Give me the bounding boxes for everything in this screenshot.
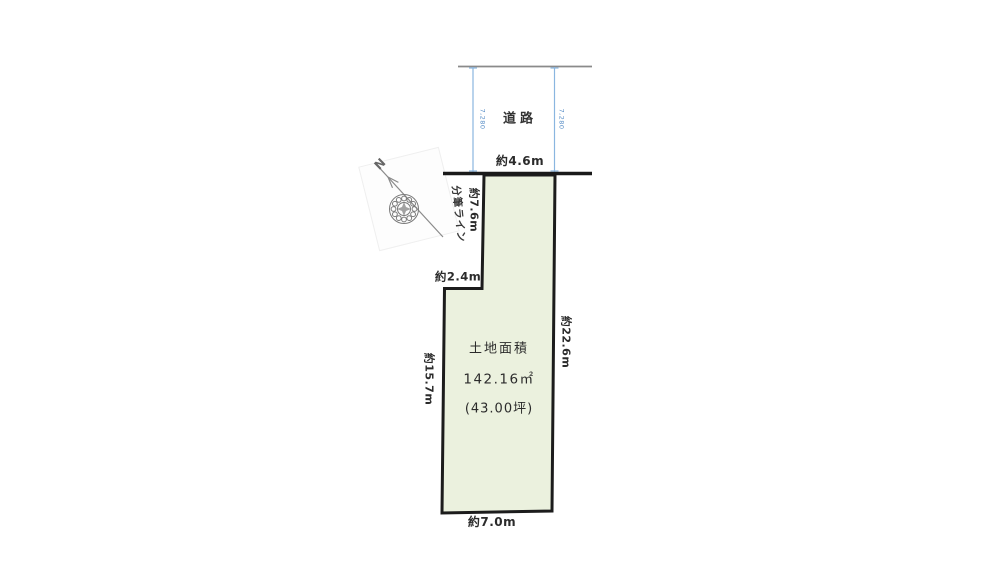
land-area-title: 土地面積	[463, 338, 534, 357]
land-plot-diagram: N 道路 7,280 7,280 約4.6m 約7.6m 分筆ライン 約2.4m…	[0, 0, 1000, 563]
road-width-dim-right: 7,280	[558, 108, 565, 129]
road-width-dim-left: 7,280	[479, 108, 486, 129]
land-area-tsubo: (43.00坪)	[463, 398, 534, 417]
step-edge-dimension: 約2.4m	[435, 271, 481, 283]
bottom-edge-dimension: 約7.0m	[468, 516, 516, 528]
diagram-shapes: N	[0, 0, 1000, 563]
road-label: 道路	[503, 113, 537, 126]
land-area-sqm: 142.16㎡	[463, 368, 534, 388]
land-area-block: 土地面積 142.16㎡ (43.00坪)	[463, 338, 534, 417]
left-edge-dimension: 約15.7m	[424, 353, 435, 406]
upper-left-edge-dimension: 約7.6m	[469, 188, 480, 232]
frontage-dimension: 約4.6m	[496, 155, 544, 167]
right-edge-dimension: 約22.6m	[561, 316, 572, 369]
